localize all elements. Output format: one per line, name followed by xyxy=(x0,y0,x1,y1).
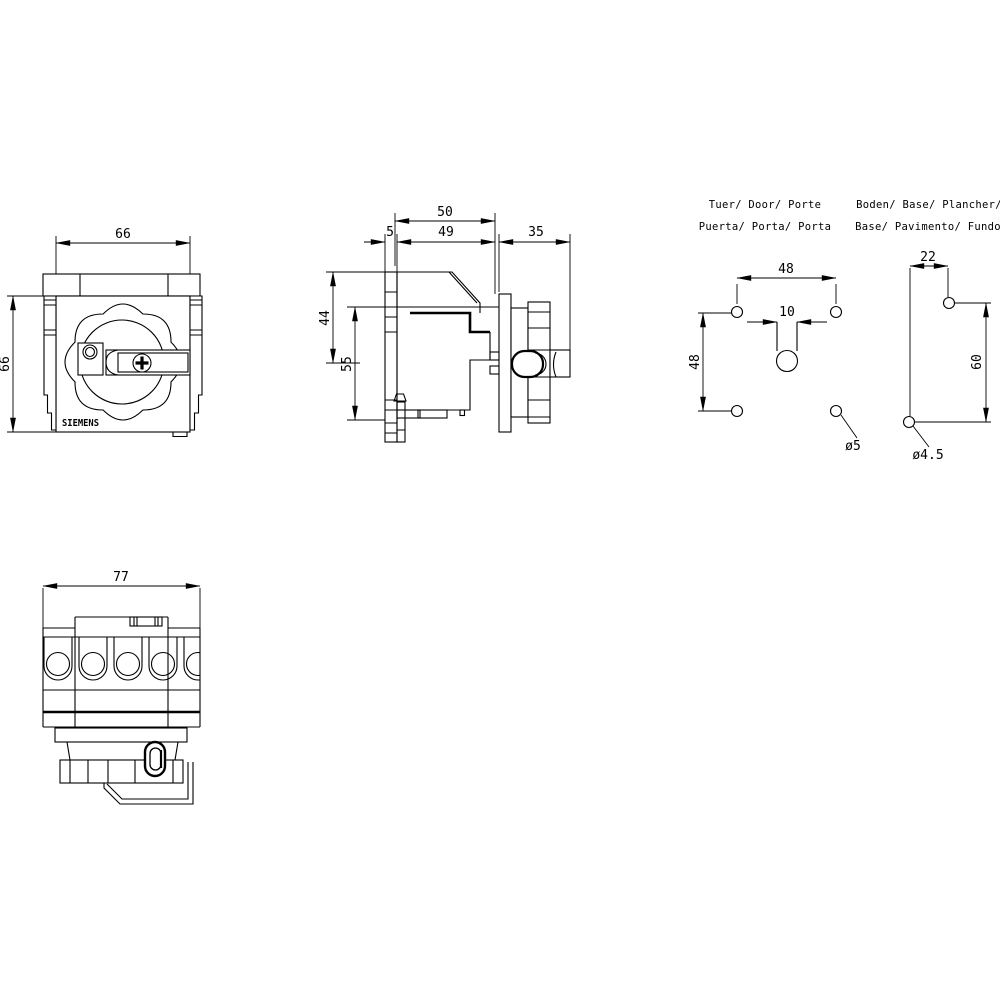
side-handle-hub xyxy=(512,351,543,377)
dim-side-plate: 5 xyxy=(386,225,394,240)
mounting-hole xyxy=(732,307,743,318)
terminal xyxy=(149,637,177,680)
dimension-drawing-page: 66 66 SIEMENS xyxy=(0,0,1000,1000)
dim-front-width: 66 xyxy=(115,227,131,242)
knob-handle xyxy=(106,350,190,375)
terminal-screw xyxy=(152,653,175,676)
mounting-hole xyxy=(831,406,842,417)
vent-slots xyxy=(130,617,162,626)
terminal xyxy=(44,637,72,680)
base-drill-pattern: Boden/ Base/ Plancher/ Base/ Pavimento/ … xyxy=(855,199,1000,463)
side-view: 50 5 49 35 44 55 xyxy=(318,205,570,442)
terminal-block xyxy=(44,637,212,680)
base-pattern-title-line2: Base/ Pavimento/ Fundo xyxy=(855,221,1000,233)
front-right-ear xyxy=(190,296,202,430)
dim-front-height: 66 xyxy=(0,356,13,372)
front-left-ear xyxy=(44,296,56,430)
dim-bottom-width: 77 xyxy=(113,570,129,585)
terminal-screw xyxy=(187,653,210,676)
terminal xyxy=(184,637,212,680)
hole-leader-line xyxy=(841,415,857,438)
mounting-hole xyxy=(904,417,915,428)
dim-side-body-depth: 49 xyxy=(438,225,454,240)
door-pattern-title-line1: Tuer/ Door/ Porte xyxy=(709,199,822,211)
escutcheon-plate xyxy=(55,728,187,742)
side-mounting-plate xyxy=(385,272,397,442)
front-top-flange xyxy=(43,274,200,296)
shaft-slot xyxy=(777,322,797,351)
hole-leader-line xyxy=(913,426,929,447)
door-drill-pattern: Tuer/ Door/ Porte Puerta/ Porta/ Porta 4… xyxy=(688,199,861,454)
door-pattern-title-line2: Puerta/ Porta/ Porta xyxy=(699,221,831,233)
dim-side-knob-depth: 35 xyxy=(528,225,544,240)
dim-side-upper-height: 44 xyxy=(318,310,333,326)
terminal-screw xyxy=(117,653,140,676)
terminal-screw xyxy=(47,653,70,676)
dim-base-spacing-h: 22 xyxy=(920,250,936,265)
brand-label: SIEMENS xyxy=(62,418,99,429)
dim-side-lower-height: 55 xyxy=(340,356,355,372)
side-door-panel xyxy=(499,294,511,432)
terminal xyxy=(114,637,142,680)
front-bottom-notch xyxy=(173,432,187,437)
dim-slot-width: 10 xyxy=(779,305,795,320)
terminal xyxy=(79,637,107,680)
dim-door-spacing-v: 48 xyxy=(688,354,703,370)
terminal-screw xyxy=(82,653,105,676)
mounting-hole xyxy=(944,298,955,309)
mounting-hole xyxy=(732,406,743,417)
side-body xyxy=(394,272,499,442)
dim-side-depth-total: 50 xyxy=(437,205,453,220)
front-view: 66 66 SIEMENS xyxy=(0,227,202,437)
bottom-view: 77 xyxy=(43,570,212,804)
bottom-housing xyxy=(43,617,212,727)
base-hole-diameter: ø4.5 xyxy=(912,448,943,463)
door-hole-diameter: ø5 xyxy=(845,439,861,454)
dim-door-spacing-h: 48 xyxy=(778,262,794,277)
base-pattern-title-line1: Boden/ Base/ Plancher/ xyxy=(856,199,1000,211)
shaft-hole xyxy=(777,351,798,372)
dim-base-spacing-v: 60 xyxy=(970,354,985,370)
bottom-knob-assembly xyxy=(55,728,193,804)
technical-drawing: 66 66 SIEMENS xyxy=(0,0,1000,1000)
mounting-hole xyxy=(831,307,842,318)
